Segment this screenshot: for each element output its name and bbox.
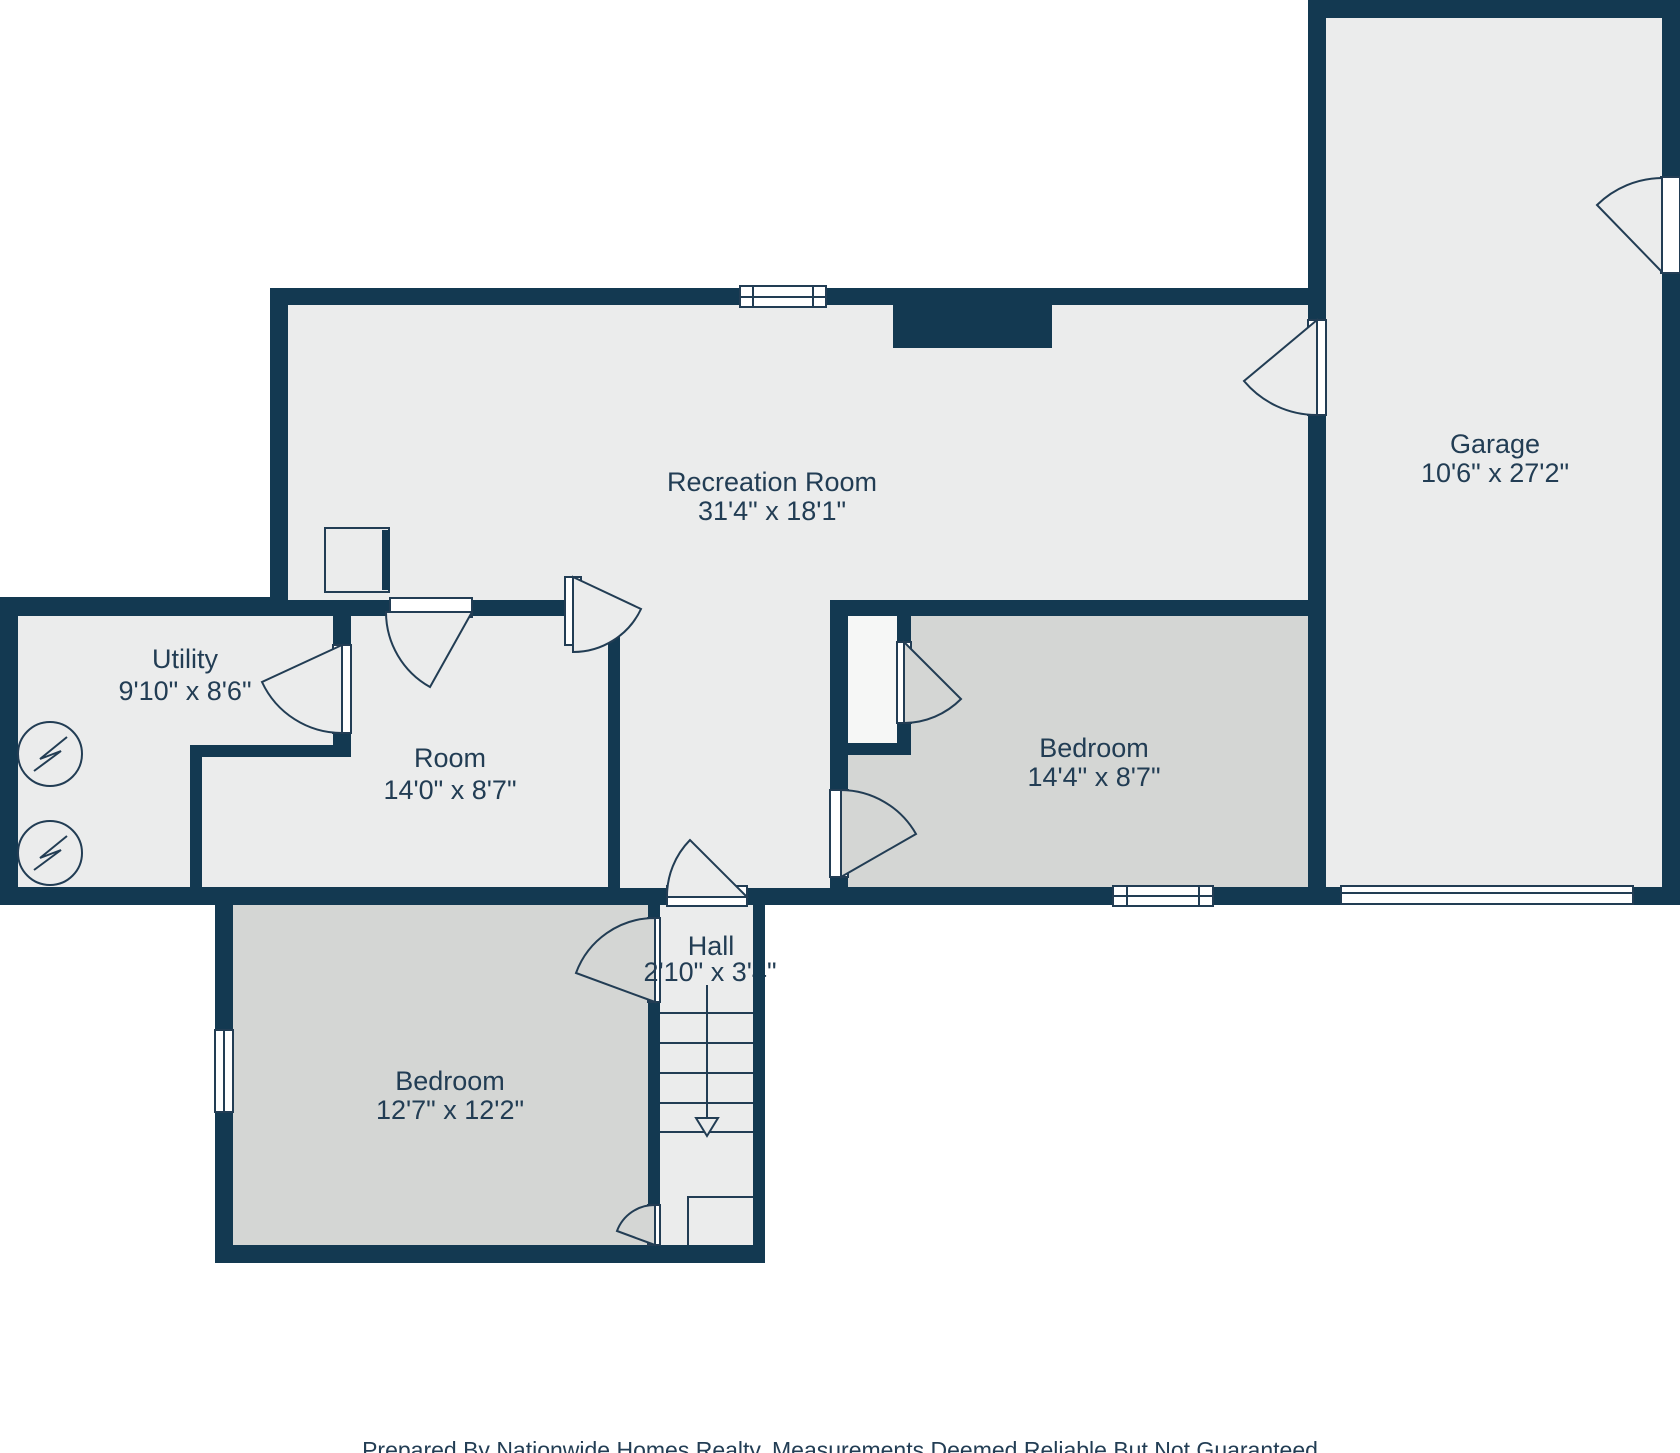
room-dims-utility: 9'10" x 8'6": [118, 676, 251, 706]
closet-bottom-wall: [848, 743, 911, 755]
room-label-room: Room: [414, 743, 486, 773]
room-dims-bedroom-right: 14'4" x 8'7": [1027, 762, 1160, 792]
floor-plan: Recreation Room 31'4" x 18'1" Garage 10'…: [0, 0, 1680, 1453]
rec-room-notch: [893, 305, 1052, 348]
room-label-bedroom-right: Bedroom: [1039, 733, 1149, 763]
garage-door-icon: [1341, 886, 1633, 904]
chimney-square: [325, 528, 390, 592]
room-dims-recreation: 31'4" x 18'1": [698, 496, 846, 526]
room-dims-room: 14'0" x 8'7": [383, 775, 516, 805]
hall-wall-overlay: [753, 905, 765, 1205]
footer-disclaimer: Prepared By Nationwide Homes Realty. Mea…: [0, 1437, 1680, 1453]
window-icon: [215, 1030, 233, 1112]
room-dims-garage: 10'6" x 27'2": [1421, 458, 1569, 488]
window-icon: [1113, 886, 1213, 906]
door-leaf: [1661, 177, 1680, 273]
room-label-recreation: Recreation Room: [667, 467, 877, 497]
room-label-utility: Utility: [152, 644, 218, 674]
floor-plan-drawing: [0, 0, 1680, 1453]
room-label-bedroom-lower: Bedroom: [395, 1066, 505, 1096]
room-dims-bedroom-lower: 12'7" x 12'2": [376, 1095, 524, 1125]
closet-floor: [848, 616, 897, 743]
window-icon: [740, 286, 826, 307]
room-label-garage: Garage: [1450, 429, 1540, 459]
